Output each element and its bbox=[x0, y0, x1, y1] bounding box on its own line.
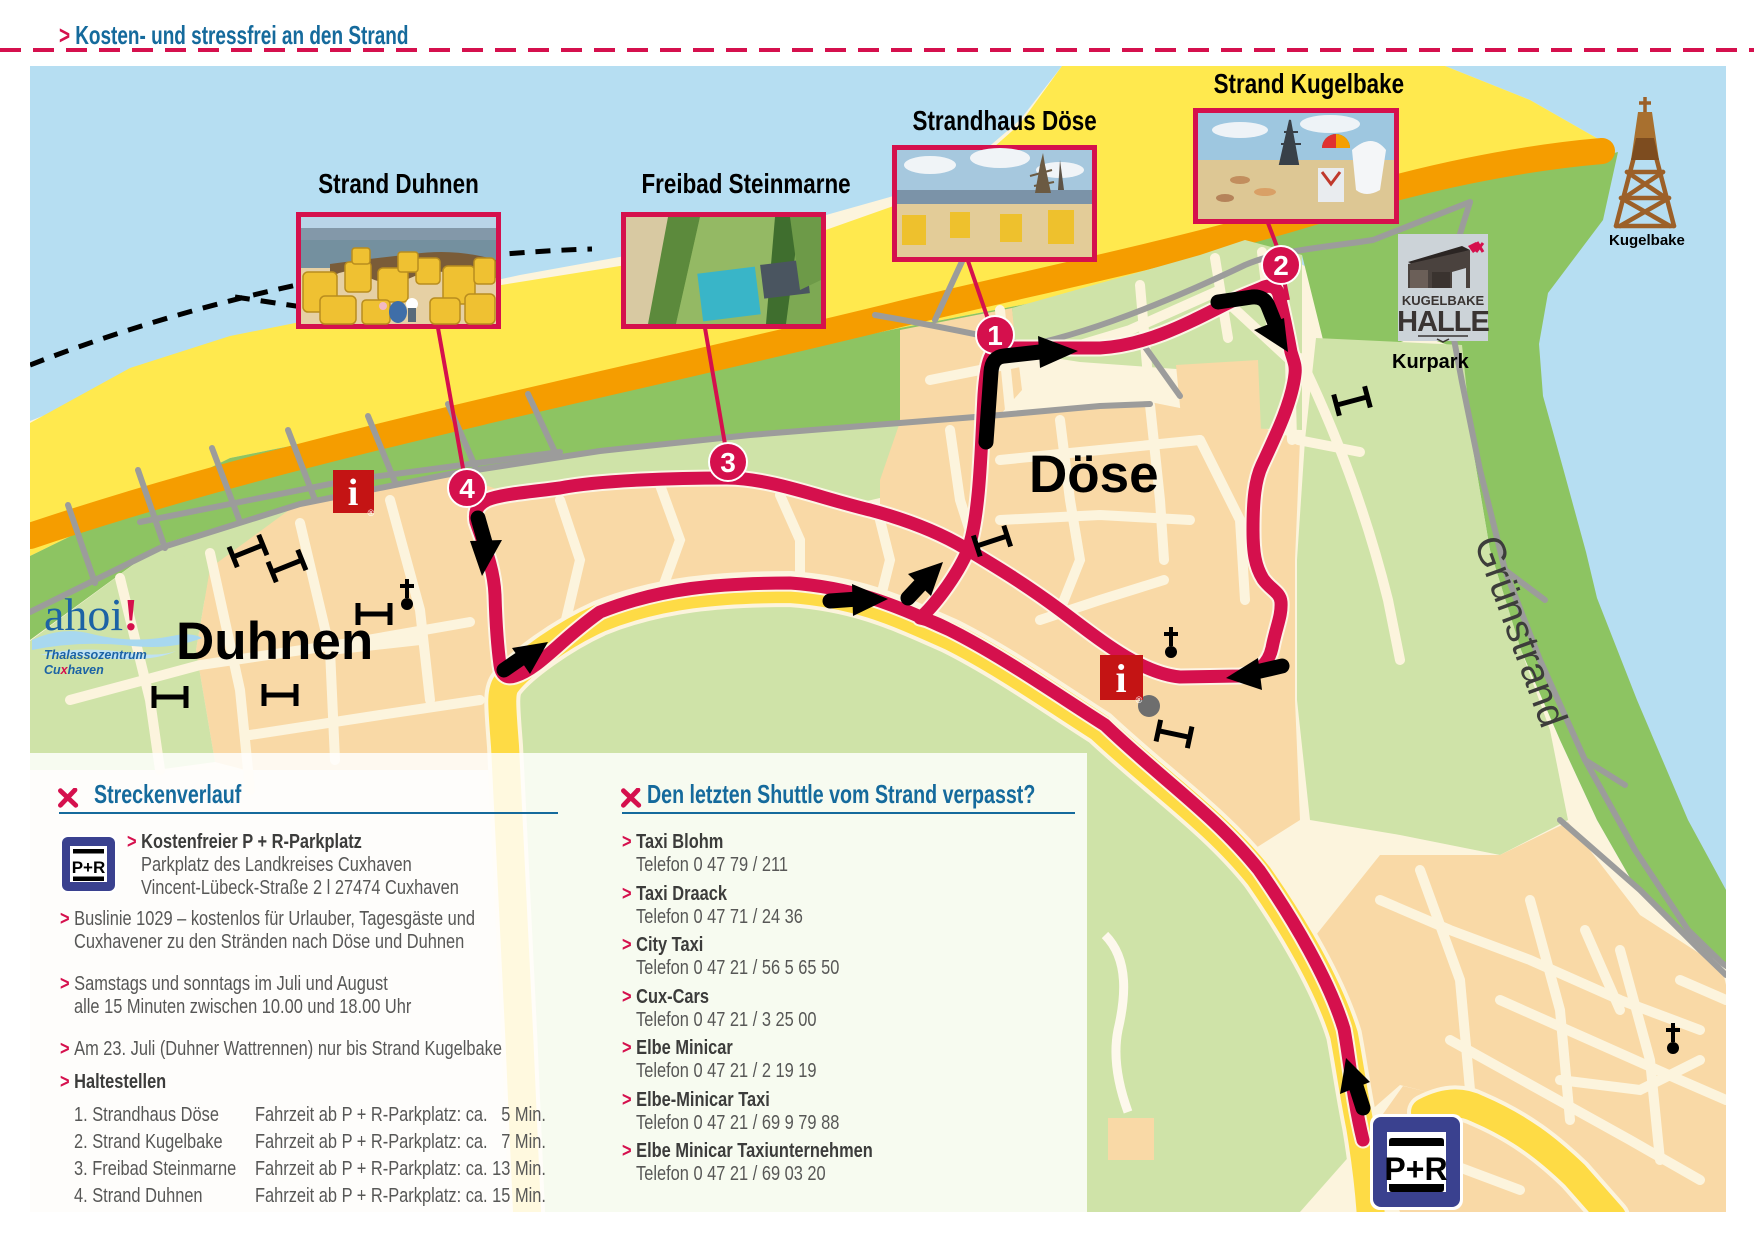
svg-text:Thalassozentrum: Thalassozentrum bbox=[44, 648, 147, 662]
svg-text:®: ® bbox=[1136, 695, 1143, 705]
svg-text:HALLE: HALLE bbox=[1397, 306, 1489, 338]
svg-text:4: 4 bbox=[459, 473, 475, 504]
svg-text:i: i bbox=[1115, 656, 1126, 701]
svg-text:P+R: P+R bbox=[72, 858, 106, 877]
svg-text:2: 2 bbox=[1273, 250, 1289, 281]
svg-text:1: 1 bbox=[987, 320, 1003, 351]
svg-text:3: 3 bbox=[720, 447, 736, 478]
svg-text:P+R: P+R bbox=[1384, 1151, 1447, 1187]
svg-text:Cuxhaven: Cuxhaven bbox=[44, 663, 104, 677]
svg-text:i: i bbox=[348, 472, 359, 514]
svg-text:ahoi!: ahoi! bbox=[44, 589, 139, 640]
svg-text:®: ® bbox=[368, 508, 375, 518]
